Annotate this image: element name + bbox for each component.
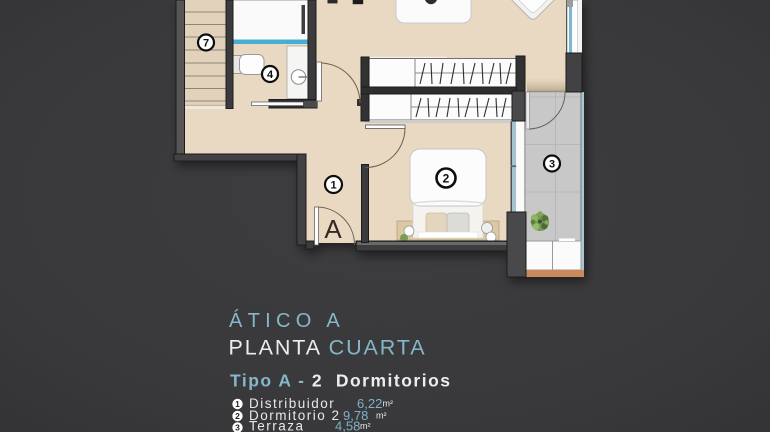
svg-text:4: 4 (267, 69, 274, 81)
svg-text:Terraza: Terraza (249, 419, 305, 432)
svg-text:m²: m² (383, 399, 394, 409)
svg-text:3: 3 (235, 423, 240, 432)
svg-text:1: 1 (235, 399, 240, 409)
svg-text:A: A (324, 214, 342, 244)
svg-text:3: 3 (549, 159, 555, 171)
svg-text:1: 1 (330, 180, 336, 192)
svg-text:2: 2 (235, 411, 240, 421)
svg-text:m²: m² (360, 421, 371, 431)
svg-text:PLANTA CUARTA: PLANTA CUARTA (229, 336, 427, 360)
svg-text:4,58: 4,58 (335, 419, 360, 432)
svg-text:ÁTICO A: ÁTICO A (229, 309, 345, 332)
svg-text:7: 7 (203, 38, 209, 50)
svg-text:Tipo A - 2 Dormitorios: Tipo A - 2 Dormitorios (230, 371, 452, 391)
svg-text:2: 2 (443, 172, 450, 186)
svg-text:m²: m² (376, 411, 387, 421)
